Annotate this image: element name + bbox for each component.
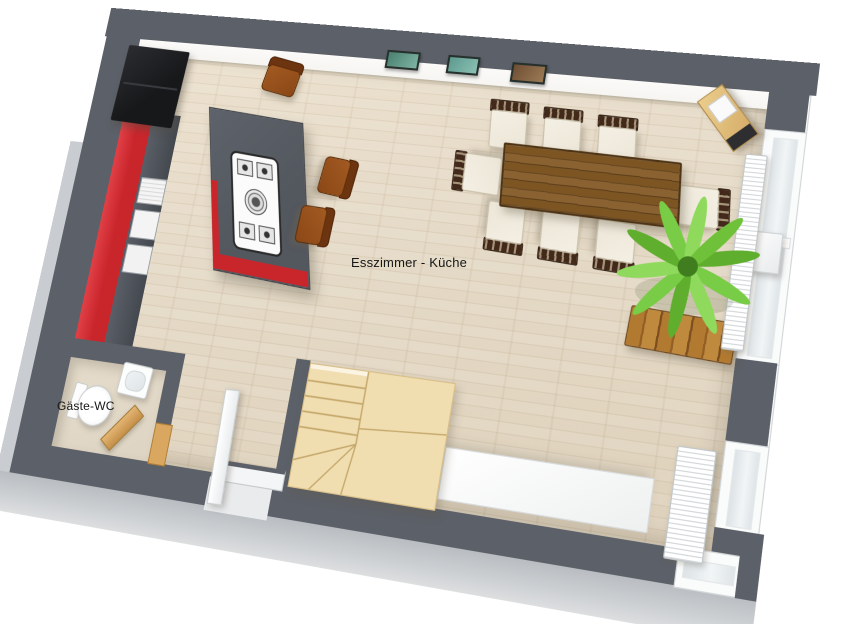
wall-corner-cap (735, 553, 762, 601)
palm-plant (604, 186, 771, 351)
burner-center (244, 187, 267, 217)
burner (239, 221, 255, 240)
floorplan-canvas: Esszimmer - Küche Gäste-WC (0, 0, 852, 624)
gas-cooktop (230, 150, 282, 258)
wall-picture-3 (510, 62, 548, 85)
fridge-door-split (123, 82, 177, 91)
burner (256, 162, 272, 181)
wall-picture-2 (446, 55, 481, 76)
chair-seat (461, 152, 502, 196)
window-right-lower (714, 440, 770, 536)
dining-chair (451, 152, 502, 198)
room-label-guest-wc: Gäste-WC (57, 399, 115, 413)
window-glass (725, 449, 760, 530)
basin-bowl (123, 369, 148, 393)
floorplan-scene (0, 8, 823, 624)
palm-plant-graphic (604, 186, 771, 351)
wall-right-top-segment (764, 92, 809, 132)
wall-picture-1 (384, 50, 421, 71)
staircase (287, 363, 456, 511)
burner (259, 225, 276, 244)
kitchen-island (209, 107, 308, 288)
room-label-dining-kitchen: Esszimmer - Küche (351, 255, 467, 270)
staircase-graphic (287, 363, 456, 511)
counter-sink-drainer (136, 177, 167, 206)
rack-panel (707, 93, 738, 123)
dining-chair (539, 209, 582, 266)
burner (237, 158, 253, 177)
